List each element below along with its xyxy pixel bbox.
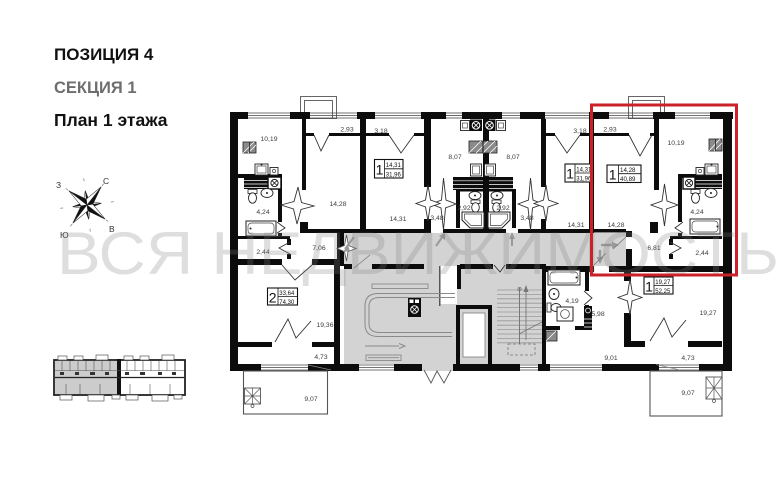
- svg-text:2,92: 2,92: [496, 205, 509, 212]
- svg-text:9,07: 9,07: [304, 396, 317, 403]
- svg-text:10,19: 10,19: [260, 136, 277, 143]
- svg-text:14,28: 14,28: [329, 201, 346, 208]
- svg-text:СЕКЦИЯ 1: СЕКЦИЯ 1: [54, 79, 137, 97]
- svg-text:ВСЯ НЕДВИЖИМОСТЬ: ВСЯ НЕДВИЖИМОСТЬ: [57, 220, 779, 287]
- svg-text:2,92: 2,92: [457, 205, 470, 212]
- svg-text:З: З: [56, 180, 61, 190]
- svg-text:4,73: 4,73: [681, 355, 694, 362]
- svg-text:31,96: 31,96: [576, 177, 592, 183]
- svg-text:4,73: 4,73: [314, 354, 327, 361]
- svg-text:2: 2: [269, 289, 277, 305]
- svg-text:ПОЗИЦИЯ 4: ПОЗИЦИЯ 4: [54, 45, 154, 64]
- svg-text:3,18: 3,18: [374, 128, 387, 135]
- svg-text:33,64: 33,64: [279, 291, 295, 297]
- svg-text:74,30: 74,30: [279, 300, 295, 306]
- svg-text:52,25: 52,25: [655, 289, 671, 295]
- svg-text:8,07: 8,07: [506, 154, 519, 161]
- svg-text:1: 1: [376, 162, 384, 178]
- svg-text:4,19: 4,19: [565, 298, 578, 305]
- svg-text:9,01: 9,01: [604, 355, 617, 362]
- svg-text:19,27: 19,27: [699, 310, 716, 317]
- svg-text:4,24: 4,24: [256, 209, 269, 216]
- svg-text:14,31: 14,31: [386, 163, 402, 169]
- svg-text:19,36: 19,36: [316, 322, 333, 329]
- svg-text:31,96: 31,96: [386, 172, 402, 178]
- svg-text:План 1 этажа: План 1 этажа: [54, 110, 168, 130]
- svg-text:4,24: 4,24: [690, 209, 703, 216]
- svg-text:2,93: 2,93: [603, 127, 616, 134]
- svg-text:14,28: 14,28: [620, 167, 636, 174]
- svg-text:С: С: [103, 176, 109, 186]
- svg-text:8,07: 8,07: [448, 154, 461, 161]
- svg-text:2,93: 2,93: [340, 127, 353, 134]
- svg-text:3,18: 3,18: [573, 128, 586, 135]
- svg-text:40,89: 40,89: [620, 176, 636, 183]
- svg-text:10,19: 10,19: [667, 140, 684, 147]
- svg-text:1: 1: [566, 166, 574, 182]
- svg-text:9,07: 9,07: [681, 390, 694, 397]
- svg-text:5,98: 5,98: [591, 311, 604, 318]
- svg-text:1: 1: [609, 167, 617, 183]
- svg-text:14,31: 14,31: [576, 167, 592, 173]
